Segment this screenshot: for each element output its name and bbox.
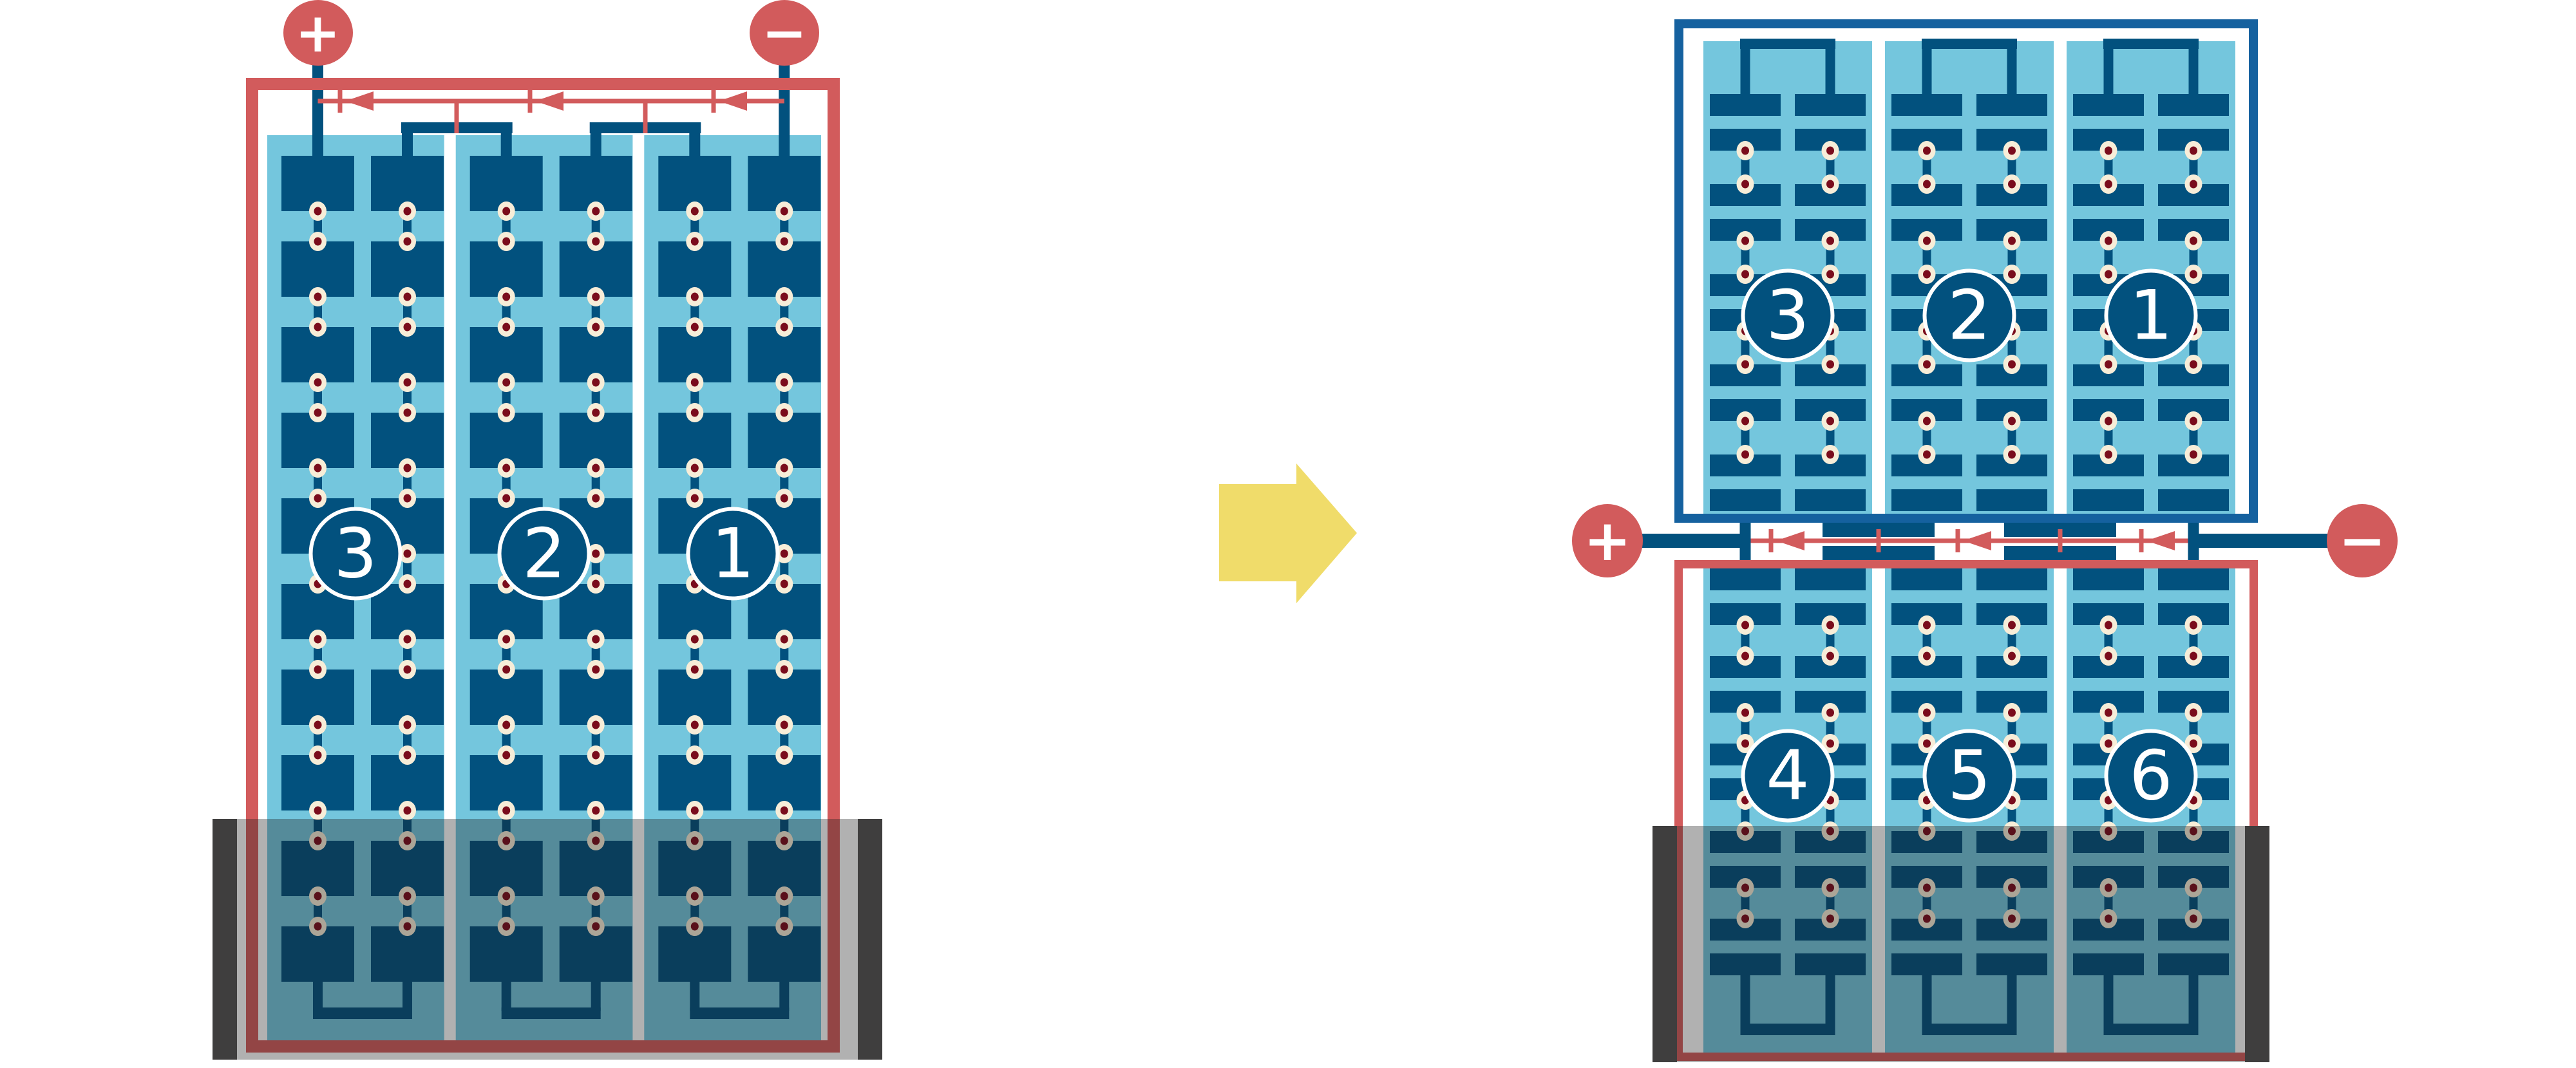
cell-number: 1 (2129, 281, 2172, 350)
cell-number: 1 (711, 520, 754, 588)
left-negative-terminal: − (750, 0, 819, 66)
left-cell-badge-1: 1 (687, 507, 780, 601)
cell-number: 2 (1947, 281, 1991, 350)
tray-handle-left (1653, 826, 1677, 1062)
left-tray-overlay (213, 819, 882, 1060)
cell-number: 2 (522, 520, 565, 588)
tray-handle-right (858, 819, 882, 1060)
right-bottom-cell-badge-5: 5 (1923, 729, 2016, 823)
left-cell-badge-3: 3 (309, 507, 402, 601)
battery-diagram-canvas: + − 3 2 1 + − 3 2 1 4 5 6 (0, 0, 2576, 1068)
right-positive-terminal: + (1572, 504, 1643, 577)
tray-handle-left (213, 819, 237, 1060)
left-cell-badge-2: 2 (498, 507, 591, 601)
right-bottom-cell-badge-6: 6 (2105, 729, 2198, 823)
tray-handle-right (2245, 826, 2269, 1062)
plus-icon: + (295, 6, 340, 60)
right-top-cell-badge-1: 1 (2105, 269, 2198, 362)
minus-icon: − (762, 6, 807, 60)
cell-number: 3 (1766, 281, 1809, 350)
right-bottom-cell-badge-4: 4 (1741, 729, 1835, 823)
cell-number: 5 (1947, 742, 1991, 810)
minus-icon: − (2338, 512, 2386, 569)
right-tray-overlay (1653, 826, 2269, 1062)
cell-number: 6 (2129, 742, 2172, 810)
right-battery-interconnect (1642, 523, 2328, 560)
left-positive-terminal: + (283, 0, 353, 66)
plus-icon: + (1584, 512, 1631, 569)
cell-number: 4 (1766, 742, 1809, 810)
cell-number: 3 (334, 520, 377, 588)
right-top-cell-badge-2: 2 (1923, 269, 2016, 362)
right-negative-terminal: − (2327, 504, 2398, 577)
right-top-cell-badge-3: 3 (1741, 269, 1835, 362)
